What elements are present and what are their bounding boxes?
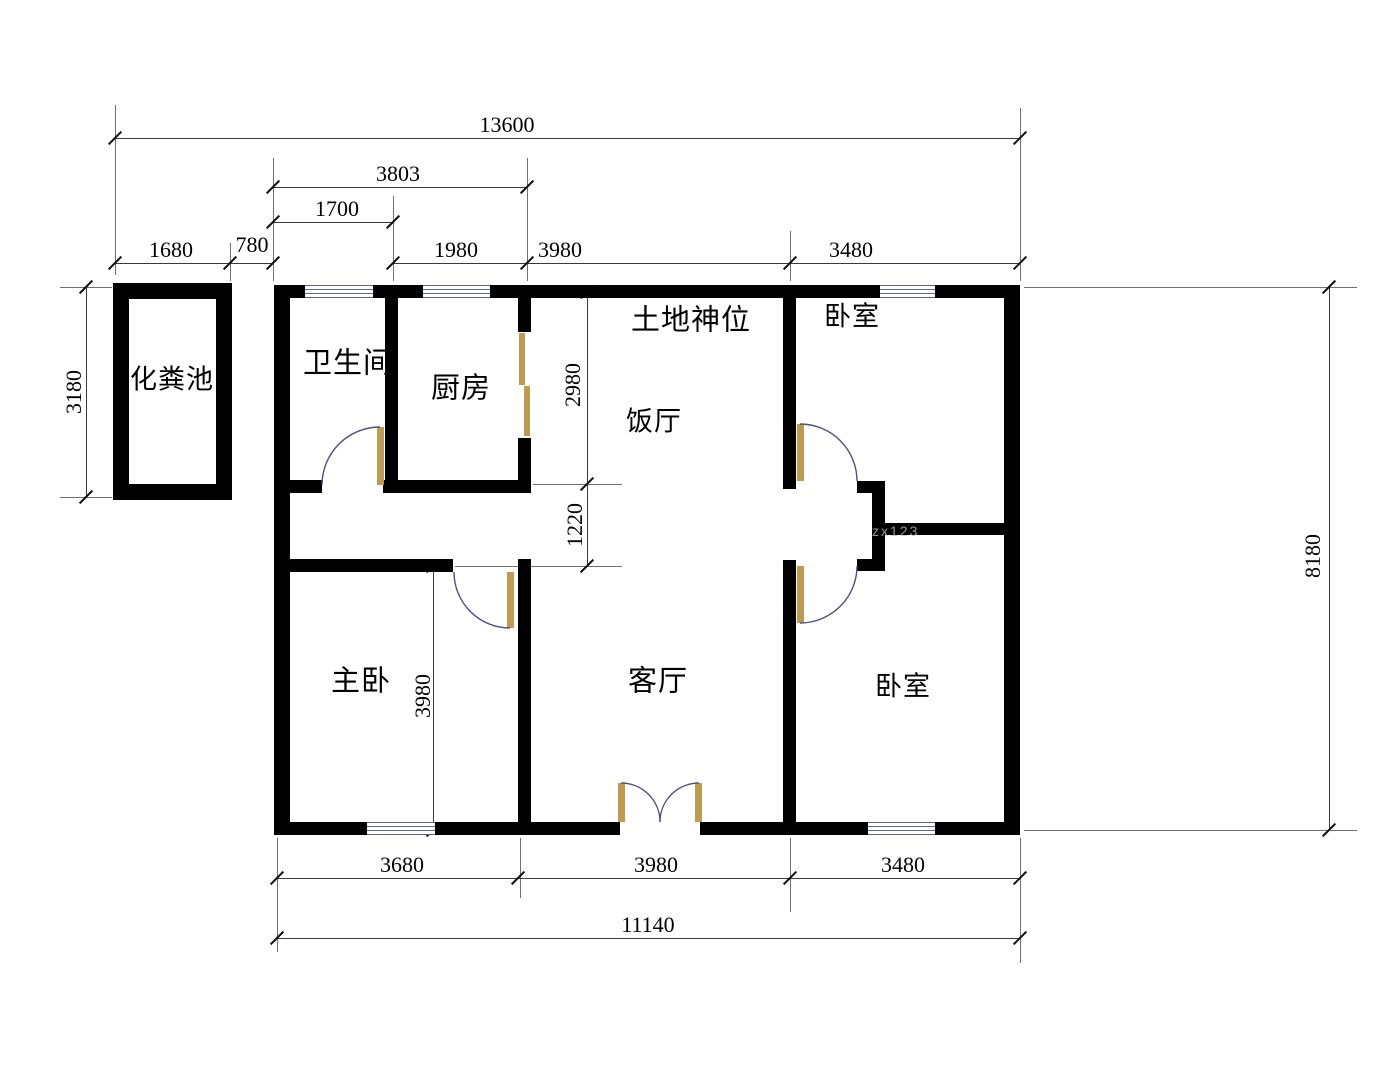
wall-kitchen-right-upper [518,298,531,332]
wall-kitchen-right-lower [518,438,531,493]
dim-label-bottom-3480: 3480 [881,854,925,876]
dim-label-master-3980: 3980 [412,674,434,718]
dim-label-3180: 3180 [63,370,85,414]
room-label-living-room: 客厅 [628,668,688,697]
extension-line [1024,287,1357,288]
room-label-bedroom-top-right: 卧室 [824,304,880,331]
wall-central-lower [783,560,796,835]
wall-bottom [274,822,367,835]
dim-line-row-right [393,263,1020,264]
door-leaf-kitchen-sliding-a [519,333,525,385]
wall-left [274,285,290,835]
dim-label-3803: 3803 [376,163,420,185]
door-swing-arc-bathroom [322,427,380,485]
dim-label-780: 780 [236,234,269,256]
door-leaf-french-right [695,783,702,822]
wall-top [490,285,880,298]
wall-top [373,285,423,298]
door-leaf-kitchen-sliding-b [524,386,530,436]
dim-line-3803 [273,187,527,188]
extension-line [520,838,521,898]
extension-line [393,196,394,281]
room-label-septic-tank: 化粪池 [130,367,214,394]
wall-septic-bottom [113,484,232,500]
door-swing-arc-bedroom-bottom-right [800,566,857,623]
room-label-bedroom-bottom-right: 卧室 [875,674,931,701]
wall-niche-bottom [857,559,885,571]
window-kitchen [423,285,490,298]
floor-plan-canvas: 13600 3803 1700 1680 780 1980 3980 3480 … [0,0,1400,1069]
dim-label-8180: 8180 [1302,534,1324,578]
wall-septic-left [113,283,129,500]
extension-line [533,484,622,485]
wall-bathroom-kitchen-divider [385,298,398,480]
wall-septic-top [113,283,232,299]
wall-corridor-bottom [290,559,453,572]
wall-bathroom-bottom [290,480,322,493]
dim-label-top-total: 13600 [480,114,535,136]
extension-line [1024,830,1357,831]
dim-line-8180 [1329,287,1330,830]
dim-label-1220: 1220 [564,503,586,547]
door-swing-arc-bedroom-top-right [800,424,857,481]
wall-septic-right [216,283,232,500]
room-label-kitchen: 厨房 [431,375,491,404]
wall-master-living-divider [518,559,531,835]
dim-line-top-total [115,138,1020,139]
window-bedroom-bottom-right [868,822,935,835]
dim-label-top-3480: 3480 [829,239,873,261]
dim-label-2980: 2980 [562,363,584,407]
door-swing-arc-french-right [660,783,699,822]
dim-line-2980-1220 [587,292,588,566]
wall-central-upper [783,298,796,489]
dim-line-bottom-total [277,938,1020,939]
dim-label-3680: 3680 [380,854,424,876]
dim-line-row-left [115,263,273,264]
dim-line-1700 [273,222,393,223]
room-label-shrine: 土地神位 [631,307,751,336]
door-leaf-bathroom [377,427,384,485]
window-bedroom-top-right [880,285,935,298]
window-master-bedroom [367,822,435,835]
extension-line [455,566,622,567]
door-leaf-bedroom-bottom-right [797,566,804,623]
extension-line [115,105,116,275]
door-leaf-master-bedroom [507,572,514,628]
dim-label-1680: 1680 [149,239,193,261]
door-swing-arc-master-bedroom [454,572,510,628]
wall-kitchen-bottom [383,480,531,493]
dim-line-3180 [86,287,87,497]
wall-bottom [935,822,1020,835]
wall-right [1004,285,1020,835]
dim-label-bottom-total: 11140 [621,914,674,936]
door-swing-arc-french-left [621,783,660,822]
room-label-dining: 饭厅 [626,409,682,436]
dim-line-bottom-row [277,878,1020,879]
extension-line [1020,838,1021,963]
room-label-bathroom: 卫生间 [303,350,393,379]
door-arcs-layer [0,0,1400,1069]
room-label-master-bedroom: 主卧 [331,668,391,697]
dim-label-bottom-3980: 3980 [634,854,678,876]
door-leaf-french-left [618,783,625,822]
extension-line [790,231,791,281]
window-bathroom [305,285,373,298]
dim-label-top-3980: 3980 [538,239,582,261]
dim-label-1980: 1980 [434,239,478,261]
watermark-text: zx123 [872,523,919,539]
door-leaf-bedroom-top-right [797,424,804,481]
dim-label-1700: 1700 [315,198,359,220]
